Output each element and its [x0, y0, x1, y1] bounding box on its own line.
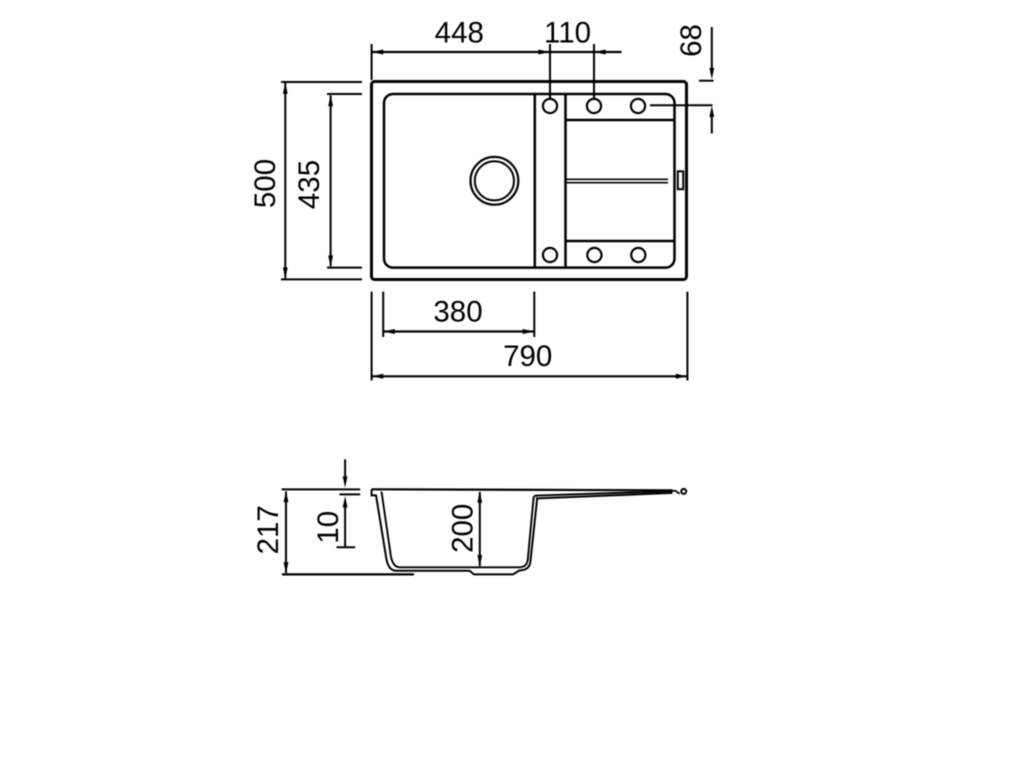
svg-text:500: 500 [249, 159, 282, 208]
svg-text:10: 10 [312, 511, 345, 544]
svg-text:68: 68 [675, 24, 708, 57]
svg-text:790: 790 [503, 340, 552, 373]
svg-text:435: 435 [293, 160, 326, 209]
svg-text:200: 200 [446, 504, 479, 553]
svg-text:380: 380 [433, 295, 482, 328]
svg-text:110: 110 [544, 16, 591, 49]
svg-text:217: 217 [252, 505, 285, 554]
svg-text:448: 448 [435, 16, 484, 49]
